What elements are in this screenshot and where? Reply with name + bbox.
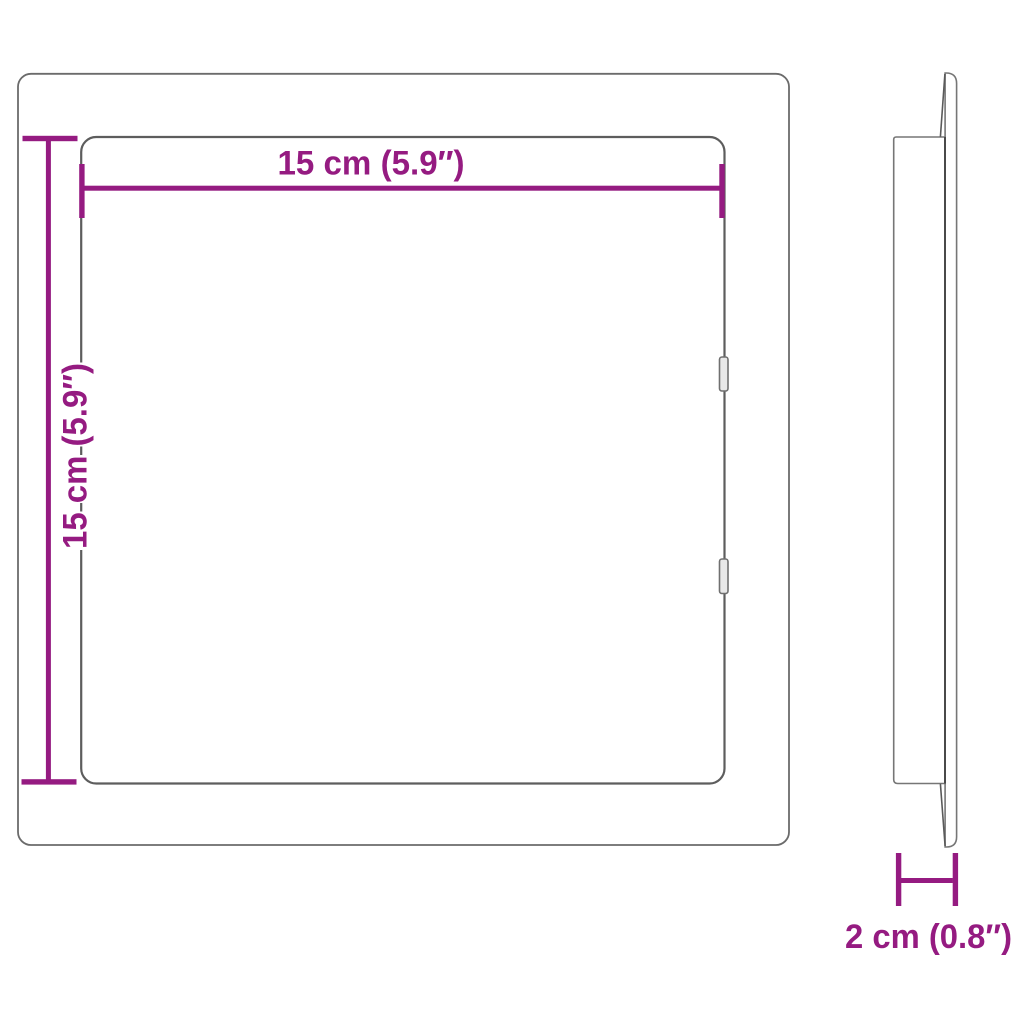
svg-text:15 cm (5.9″): 15 cm (5.9″) bbox=[278, 144, 465, 182]
svg-text:15 cm (5.9″): 15 cm (5.9″) bbox=[57, 363, 95, 549]
svg-text:2 cm (0.8″): 2 cm (0.8″) bbox=[845, 918, 1012, 956]
